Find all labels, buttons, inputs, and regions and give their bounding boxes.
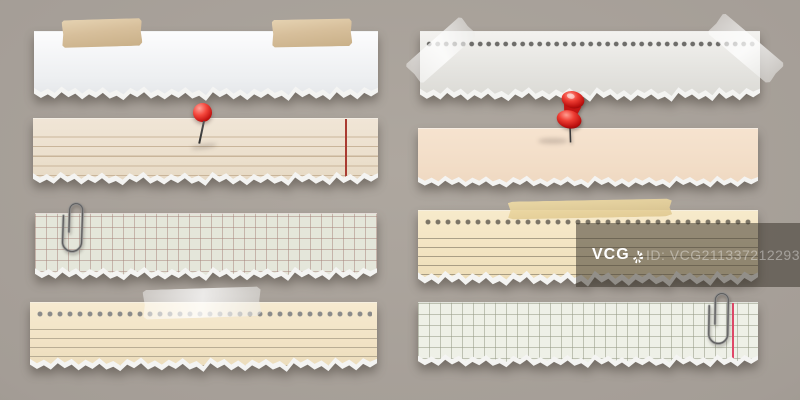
paper-strip-perforated-taped [30, 302, 377, 374]
watermark-id-text: ID: VCG211337212293 [646, 247, 800, 263]
adhesive-tape [272, 18, 353, 48]
watermark-brand-text: VCG [592, 246, 630, 264]
paper-strip-grid-clipped-2 [418, 302, 758, 370]
paper-strip-white-taped [34, 31, 378, 103]
paper-strip-grid-clipped [35, 213, 377, 283]
paper-strip-peach-pushpinned [418, 128, 758, 190]
adhesive-tape-translucent [508, 198, 672, 219]
paper-strip-ruled-pinned [33, 118, 378, 188]
adhesive-tape-translucent [143, 286, 262, 320]
stock-image-canvas: VCG ID: VCG211337212293 [0, 0, 800, 400]
vcg-starburst-icon [632, 228, 644, 286]
round-ball-pin [193, 103, 212, 122]
adhesive-tape [62, 18, 143, 49]
punch-holes-row [425, 39, 755, 49]
vcg-watermark: VCG ID: VCG211337212293 [576, 223, 800, 287]
paperclip [704, 288, 733, 352]
pin-shadow [538, 138, 568, 144]
torn-paper-silhouette [33, 118, 378, 188]
paperclip [58, 199, 88, 260]
